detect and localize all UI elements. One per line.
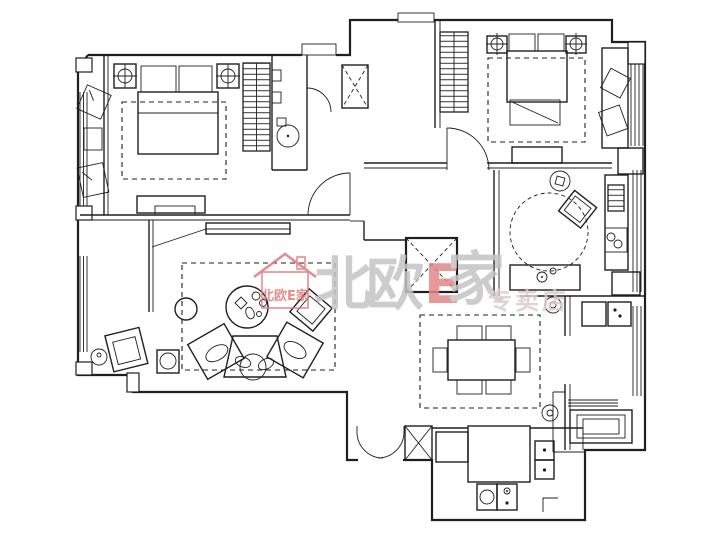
double-bed xyxy=(138,92,218,154)
window-bathroom xyxy=(633,306,641,396)
floor-plan-drawing: 北欧E家 北 欧 E 家 专卖店 xyxy=(0,0,728,536)
watermark-char-2: 欧 xyxy=(366,250,424,318)
wardrobe xyxy=(440,32,468,112)
bedside-lamp-icon xyxy=(216,64,240,88)
floor-lamp xyxy=(157,350,179,373)
bathtub xyxy=(570,410,632,443)
master-balcony xyxy=(77,85,111,198)
dining-chair xyxy=(486,326,511,340)
logo-text: 北欧E家 xyxy=(261,288,310,304)
tv-cabinet xyxy=(512,147,562,163)
toilet-icon xyxy=(277,118,299,147)
lounge-cushion xyxy=(77,85,111,119)
sectional-sofa xyxy=(188,322,324,380)
pillow xyxy=(509,34,535,51)
pillow xyxy=(601,68,631,98)
door-master xyxy=(308,173,350,215)
window-balcony-lower xyxy=(80,256,87,352)
floor-plan-page: 北欧E家 北 欧 E 家 专卖店 xyxy=(0,0,728,536)
shaft-hall xyxy=(342,65,368,108)
windows xyxy=(80,64,643,396)
master-bedroom xyxy=(113,63,270,215)
watermark-char-1: 北 xyxy=(314,250,372,318)
house-logo-icon: 北欧E家 xyxy=(254,254,316,308)
stool xyxy=(91,349,107,365)
dining-table xyxy=(448,340,515,380)
hall-cabinet xyxy=(206,223,290,234)
round-rug xyxy=(510,193,588,271)
washing-machine xyxy=(582,302,606,326)
column xyxy=(628,42,645,64)
kitchen-island xyxy=(468,426,530,482)
corner-counter xyxy=(543,498,558,512)
dining-chair xyxy=(457,380,482,394)
shaft-kitchen xyxy=(405,426,432,460)
cabinet xyxy=(612,272,640,295)
living-balcony xyxy=(91,327,148,371)
column xyxy=(76,206,92,220)
column xyxy=(76,362,92,375)
second-bedroom xyxy=(440,32,643,174)
cooktop xyxy=(497,484,517,510)
sink-unit xyxy=(608,302,631,326)
watermark-subtitle: 专卖店 xyxy=(488,287,569,315)
column xyxy=(76,58,92,72)
bathroom-laundry xyxy=(568,272,640,443)
window-seat xyxy=(599,48,631,148)
side-table xyxy=(175,298,197,320)
wall-cabinets xyxy=(535,441,554,479)
column xyxy=(127,373,139,392)
dining-chair xyxy=(433,348,447,372)
dining-chair xyxy=(516,348,530,372)
downlight-icon xyxy=(542,405,558,421)
pillow xyxy=(538,34,564,51)
sink-unit xyxy=(477,484,497,510)
nightstand xyxy=(618,148,643,174)
wardrobe xyxy=(243,63,270,151)
interior-walls xyxy=(80,20,645,452)
wall-cabinet xyxy=(605,175,628,270)
stool xyxy=(550,171,570,191)
pillow xyxy=(179,66,212,92)
dining-chair xyxy=(457,326,482,340)
window-balcony-upper xyxy=(80,92,87,206)
pillow xyxy=(141,66,176,92)
study xyxy=(510,171,628,290)
bathroom1 xyxy=(277,118,299,147)
door-bathroom1 xyxy=(307,88,331,112)
door-bedroom2 xyxy=(447,128,489,170)
double-bed xyxy=(507,51,567,125)
radiator xyxy=(568,400,618,406)
bedside-lamp-icon xyxy=(113,64,137,88)
entry-double-door xyxy=(357,426,404,458)
lounge-chair xyxy=(105,327,148,371)
kitchen xyxy=(436,426,558,512)
kitchen-counter xyxy=(436,432,468,462)
watermark: 北欧E家 北 欧 E 家 专卖店 xyxy=(254,245,569,318)
dining-chair xyxy=(486,380,511,394)
tv-cabinet xyxy=(137,196,205,215)
pillow xyxy=(599,105,628,136)
window-bedroom2 xyxy=(631,64,643,146)
